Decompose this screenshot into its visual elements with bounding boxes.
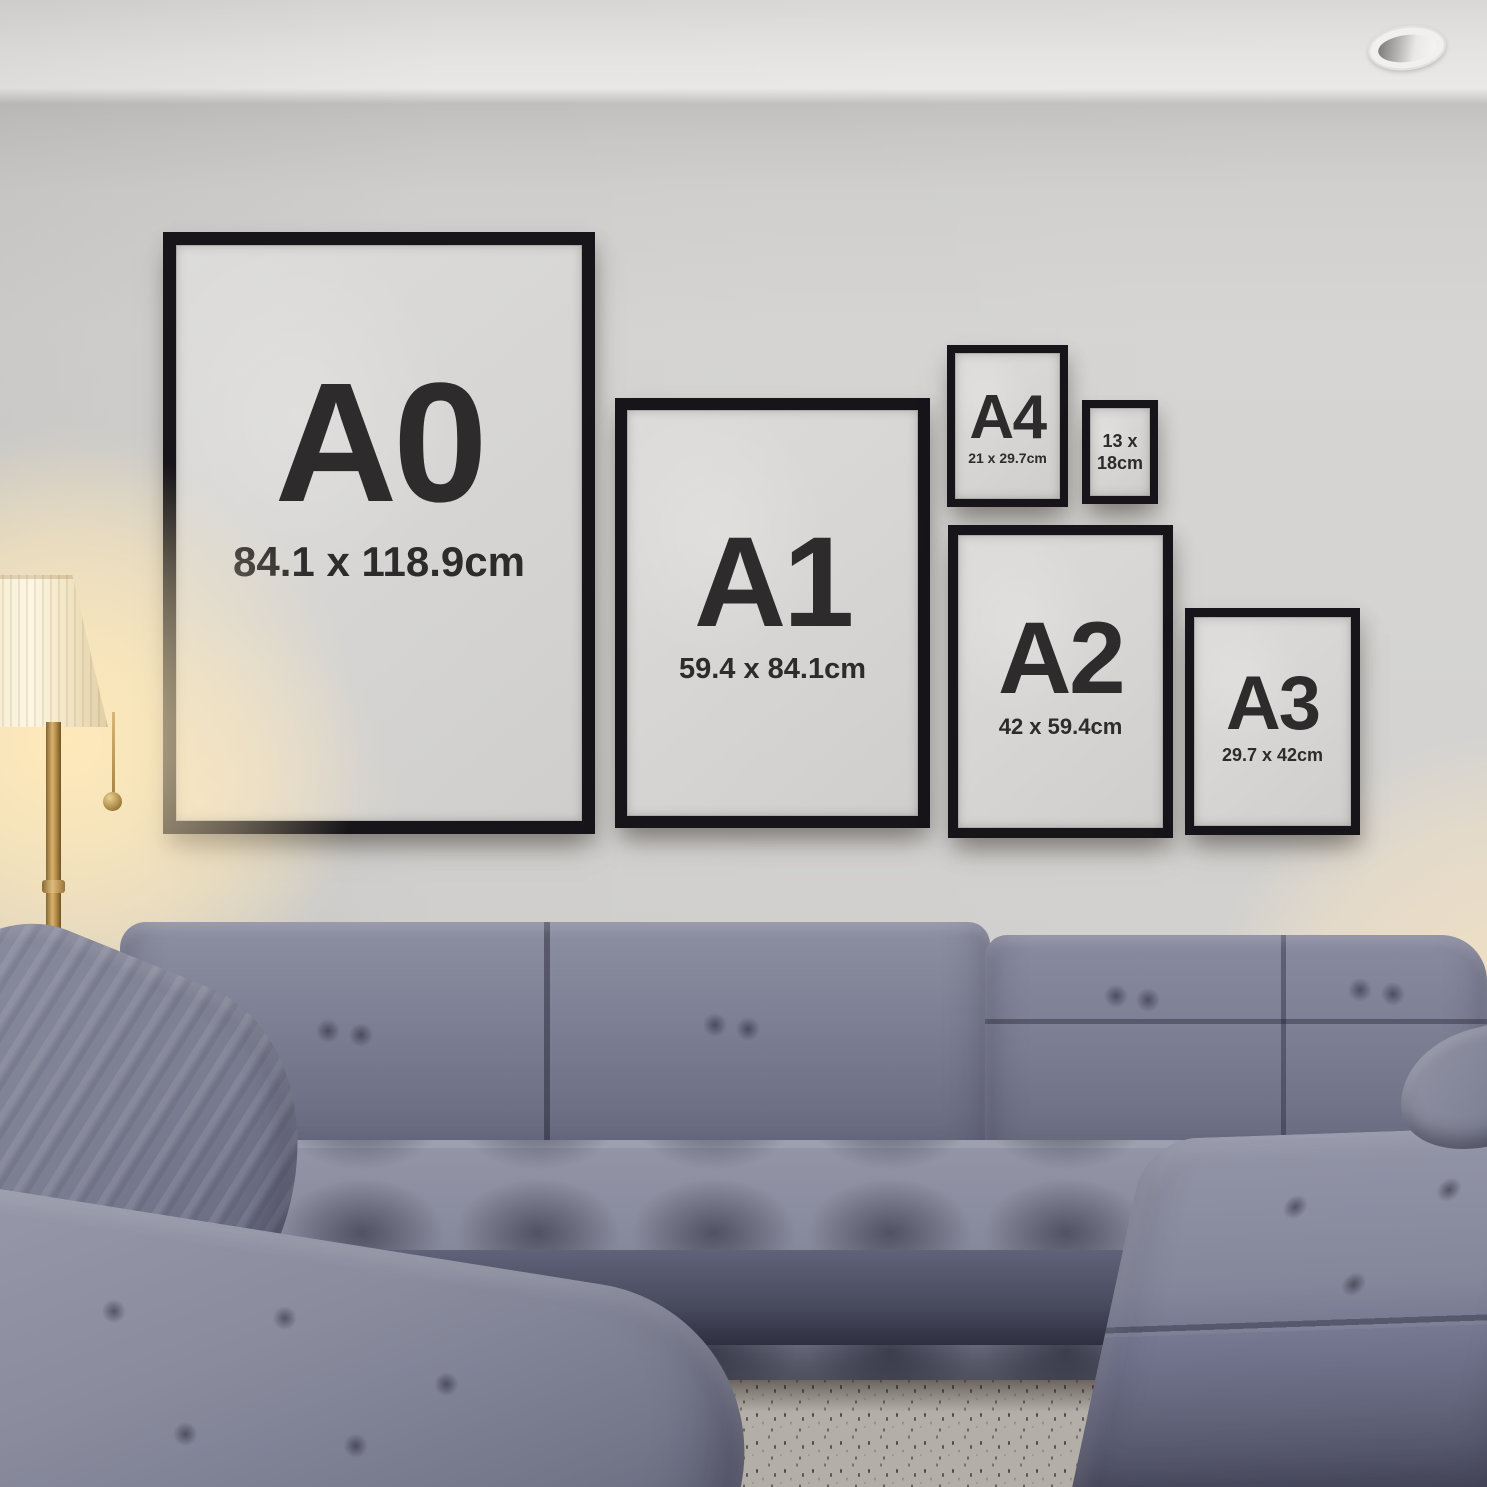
living-room-scene: A0 84.1 x 118.9cm A1 59.4 x 84.1cm A4 21…	[0, 0, 1487, 1487]
size-dimensions-a1: 59.4 x 84.1cm	[679, 653, 866, 686]
size-label-a1: A1	[694, 524, 851, 642]
frame-a1: A1 59.4 x 84.1cm	[615, 398, 930, 828]
poster-13x18: 13 x 18cm	[1090, 408, 1150, 496]
size-label-a3: A3	[1226, 669, 1319, 739]
lamp-pole-collar	[42, 880, 65, 893]
size-label-a4: A4	[969, 389, 1045, 446]
poster-a1: A1 59.4 x 84.1cm	[627, 410, 918, 816]
size-label-13x18-line1: 13 x	[1102, 430, 1137, 453]
poster-a2: A2 42 x 59.4cm	[958, 535, 1163, 828]
recessed-ceiling-light	[1366, 21, 1449, 74]
size-label-13x18-line2: 18cm	[1097, 452, 1143, 475]
frame-a3: A3 29.7 x 42cm	[1185, 608, 1360, 835]
poster-a3: A3 29.7 x 42cm	[1194, 617, 1351, 826]
size-label-a2: A2	[998, 612, 1123, 706]
size-dimensions-a2: 42 x 59.4cm	[999, 714, 1123, 740]
frame-a4: A4 21 x 29.7cm	[947, 345, 1068, 507]
poster-a4: A4 21 x 29.7cm	[955, 353, 1060, 499]
lamp-pull-chain	[112, 712, 115, 796]
frame-a2: A2 42 x 59.4cm	[948, 525, 1173, 838]
size-dimensions-a4: 21 x 29.7cm	[968, 450, 1047, 466]
frame-13x18: 13 x 18cm	[1082, 400, 1158, 504]
ceiling-light-inner-ring	[1377, 32, 1438, 66]
lamp-pull-chain-ball	[103, 792, 122, 811]
size-dimensions-a3: 29.7 x 42cm	[1222, 745, 1323, 766]
